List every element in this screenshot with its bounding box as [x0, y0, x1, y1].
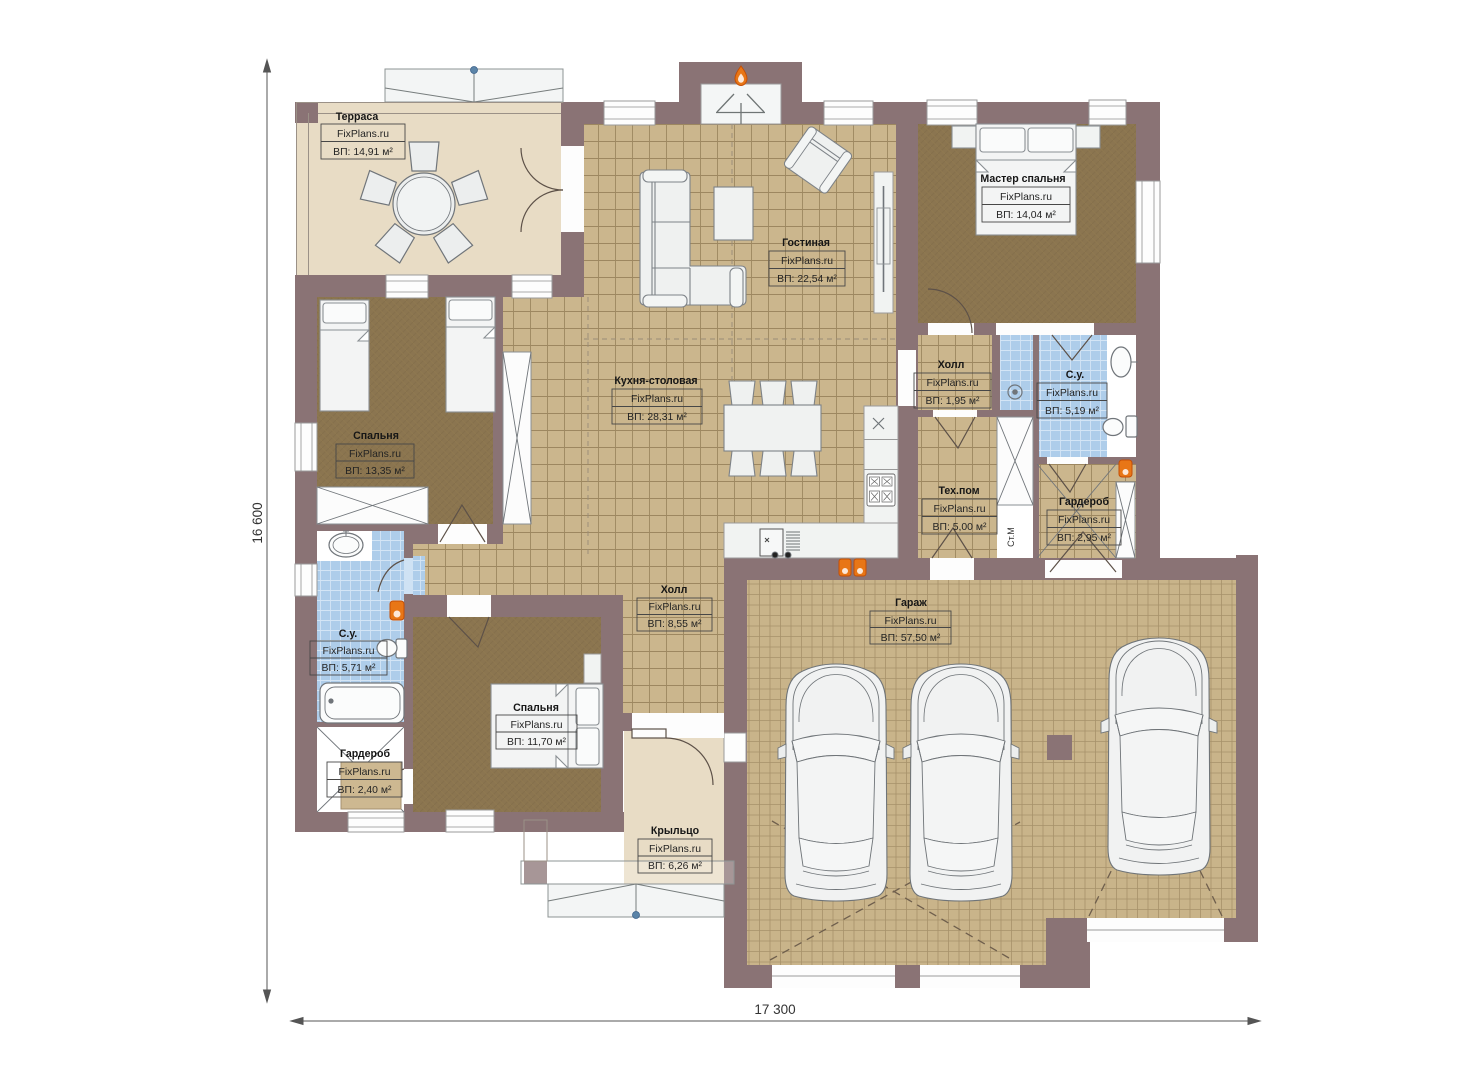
svg-text:Гардероб: Гардероб — [340, 748, 391, 760]
svg-text:ВП: 28,31 м²: ВП: 28,31 м² — [627, 412, 687, 423]
svg-text:Мастер спальня: Мастер спальня — [980, 173, 1065, 185]
svg-text:FixPlans.ru: FixPlans.ru — [927, 378, 979, 389]
svg-text:ВП: 2,40 м²: ВП: 2,40 м² — [338, 785, 392, 796]
svg-text:Тех.пом: Тех.пом — [938, 485, 979, 497]
svg-text:Ст.М: Ст.М — [1006, 527, 1016, 547]
svg-text:FixPlans.ru: FixPlans.ru — [1058, 515, 1110, 526]
svg-text:ВП: 2,95 м²: ВП: 2,95 м² — [1057, 533, 1111, 544]
svg-text:ВП: 1,95 м²: ВП: 1,95 м² — [926, 396, 980, 407]
svg-text:Крыльцо: Крыльцо — [651, 825, 700, 837]
svg-text:Гардероб: Гардероб — [1059, 496, 1110, 508]
svg-text:FixPlans.ru: FixPlans.ru — [349, 449, 401, 460]
svg-text:ВП: 8,55 м²: ВП: 8,55 м² — [648, 619, 702, 630]
svg-text:ВП: 5,71 м²: ВП: 5,71 м² — [322, 663, 376, 674]
svg-text:ВП: 11,70 м²: ВП: 11,70 м² — [507, 737, 566, 748]
svg-text:FixPlans.ru: FixPlans.ru — [885, 616, 937, 627]
svg-text:Гостиная: Гостиная — [782, 237, 830, 249]
svg-text:FixPlans.ru: FixPlans.ru — [631, 394, 683, 405]
svg-text:Гараж: Гараж — [895, 597, 927, 609]
svg-text:Спальня: Спальня — [353, 430, 399, 442]
svg-text:16 600: 16 600 — [250, 502, 265, 543]
svg-text:Кухня-столовая: Кухня-столовая — [614, 375, 697, 387]
svg-text:FixPlans.ru: FixPlans.ru — [339, 767, 391, 778]
svg-text:С.у.: С.у. — [1066, 369, 1085, 381]
svg-text:Терраса: Терраса — [336, 111, 379, 123]
svg-text:ВП: 57,50 м²: ВП: 57,50 м² — [881, 633, 941, 644]
svg-text:Спальня: Спальня — [513, 702, 559, 714]
svg-text:ВП: 6,26 м²: ВП: 6,26 м² — [648, 861, 702, 872]
svg-text:FixPlans.ru: FixPlans.ru — [649, 602, 701, 613]
svg-text:FixPlans.ru: FixPlans.ru — [511, 720, 563, 731]
svg-text:FixPlans.ru: FixPlans.ru — [337, 129, 389, 140]
svg-text:С.у.: С.у. — [339, 628, 358, 640]
svg-text:ВП: 14,04 м²: ВП: 14,04 м² — [996, 210, 1056, 221]
svg-text:ВП: 5,19 м²: ВП: 5,19 м² — [1045, 406, 1099, 417]
svg-text:Холл: Холл — [661, 584, 688, 596]
svg-text:17 300: 17 300 — [754, 1002, 795, 1017]
svg-text:FixPlans.ru: FixPlans.ru — [649, 844, 701, 855]
svg-text:FixPlans.ru: FixPlans.ru — [323, 646, 375, 657]
svg-text:Холл: Холл — [938, 359, 965, 371]
svg-text:FixPlans.ru: FixPlans.ru — [1046, 388, 1098, 399]
svg-text:FixPlans.ru: FixPlans.ru — [1000, 192, 1052, 203]
svg-text:FixPlans.ru: FixPlans.ru — [934, 504, 986, 515]
svg-text:ВП: 13,35 м²: ВП: 13,35 м² — [345, 466, 405, 477]
svg-text:ВП: 5,00 м²: ВП: 5,00 м² — [933, 522, 987, 533]
svg-text:ВП: 14,91 м²: ВП: 14,91 м² — [333, 147, 393, 158]
svg-text:ВП: 22,54 м²: ВП: 22,54 м² — [777, 274, 837, 285]
svg-text:FixPlans.ru: FixPlans.ru — [781, 256, 833, 267]
